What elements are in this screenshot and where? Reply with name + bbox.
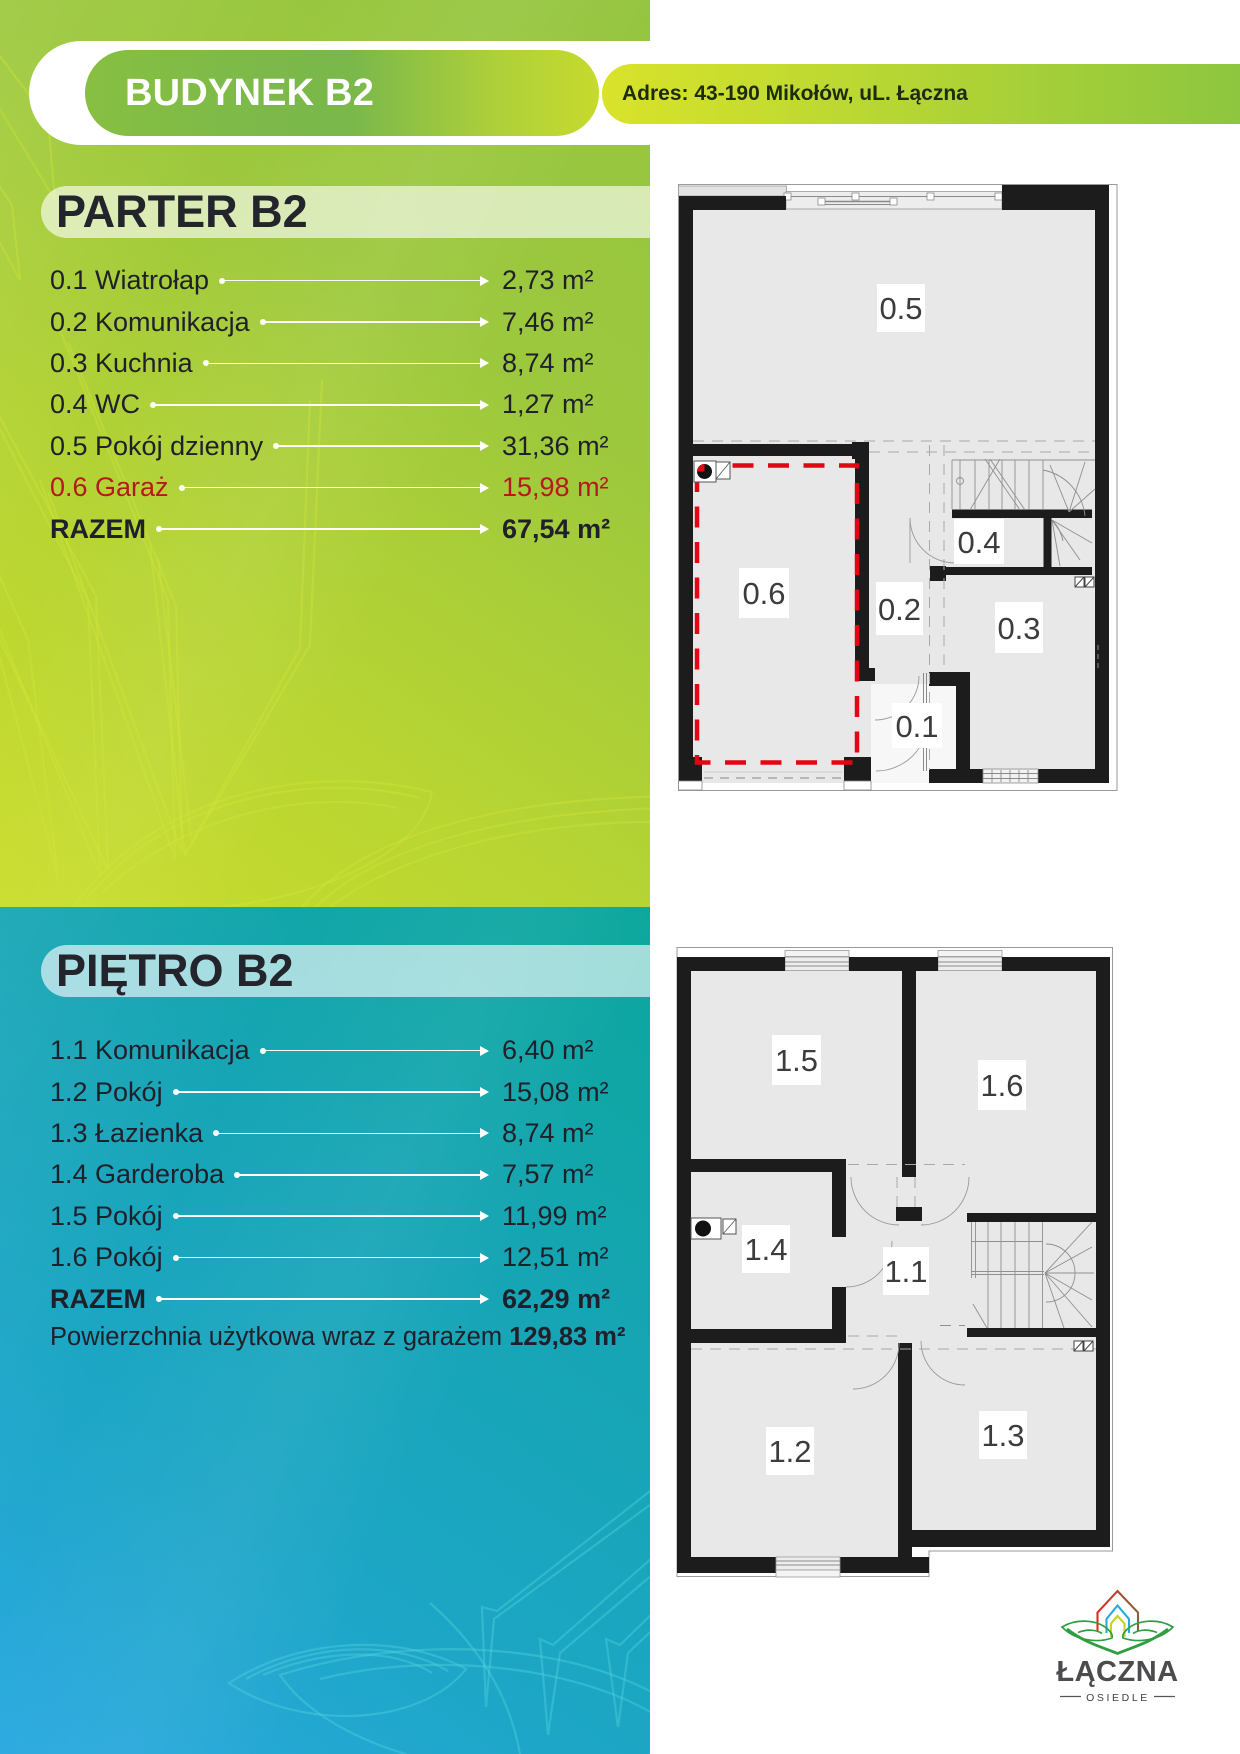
svg-text:1.4: 1.4 [744, 1232, 787, 1267]
svg-text:0.3: 0.3 [997, 611, 1040, 646]
svg-text:1.5: 1.5 [775, 1043, 818, 1078]
svg-text:1.1: 1.1 [884, 1254, 927, 1289]
svg-text:1.2: 1.2 [768, 1434, 811, 1469]
svg-text:1.3: 1.3 [981, 1418, 1024, 1453]
svg-text:0.5: 0.5 [879, 291, 922, 326]
svg-text:0.2: 0.2 [878, 592, 921, 627]
svg-text:OSIEDLE: OSIEDLE [1086, 1692, 1150, 1704]
svg-text:ŁĄCZNA: ŁĄCZNA [1056, 1656, 1178, 1688]
svg-text:0.1: 0.1 [895, 709, 938, 744]
svg-text:1.6: 1.6 [980, 1068, 1023, 1103]
svg-text:0.4: 0.4 [957, 525, 1000, 560]
svg-text:0.6: 0.6 [742, 576, 785, 611]
